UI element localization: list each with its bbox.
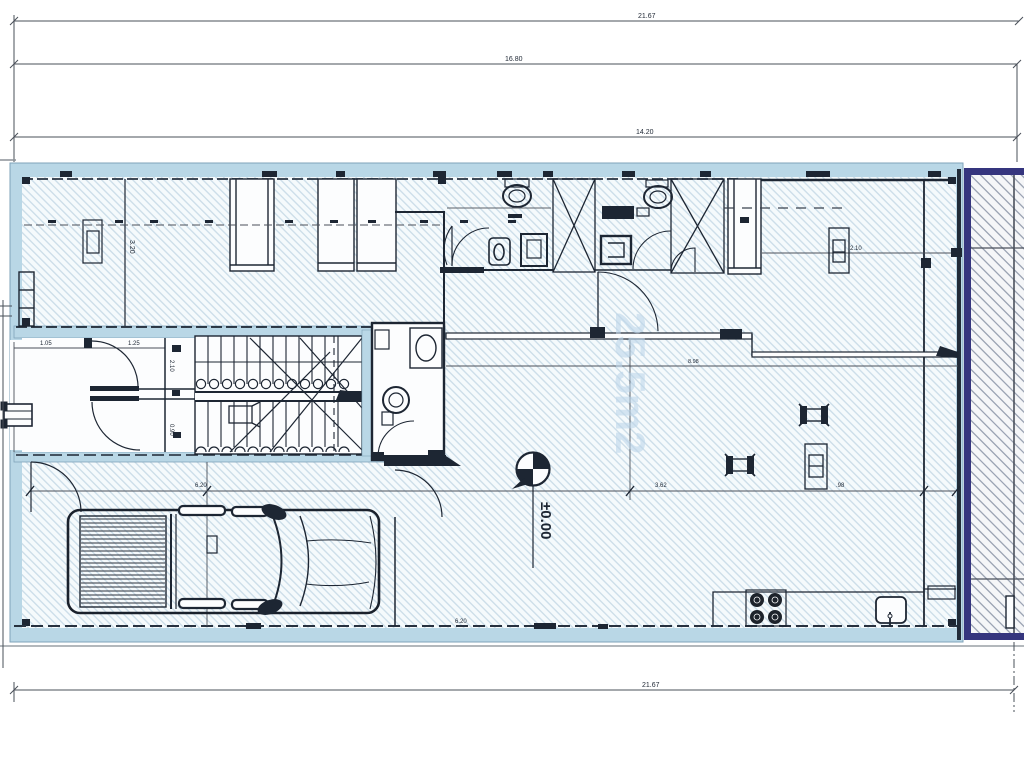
svg-text:21.67: 21.67 [638, 13, 656, 20]
svg-text:±0.00: ±0.00 [537, 502, 554, 539]
svg-text:16.80: 16.80 [505, 56, 523, 63]
svg-text:3.20: 3.20 [128, 240, 135, 254]
svg-text:.98: .98 [836, 483, 845, 489]
svg-text:25.5m2: 25.5m2 [607, 312, 654, 454]
svg-text:3.62: 3.62 [655, 483, 667, 489]
svg-text:1.05: 1.05 [40, 341, 52, 347]
svg-text:8.98: 8.98 [688, 359, 699, 365]
svg-text:6.20: 6.20 [455, 619, 467, 625]
svg-text:2.10: 2.10 [168, 360, 174, 372]
svg-text:14.20: 14.20 [636, 129, 654, 136]
svg-text:6.20: 6.20 [195, 483, 207, 489]
svg-text:2.10: 2.10 [850, 246, 862, 252]
svg-text:1.25: 1.25 [128, 341, 140, 347]
svg-text:21.67: 21.67 [642, 682, 660, 689]
